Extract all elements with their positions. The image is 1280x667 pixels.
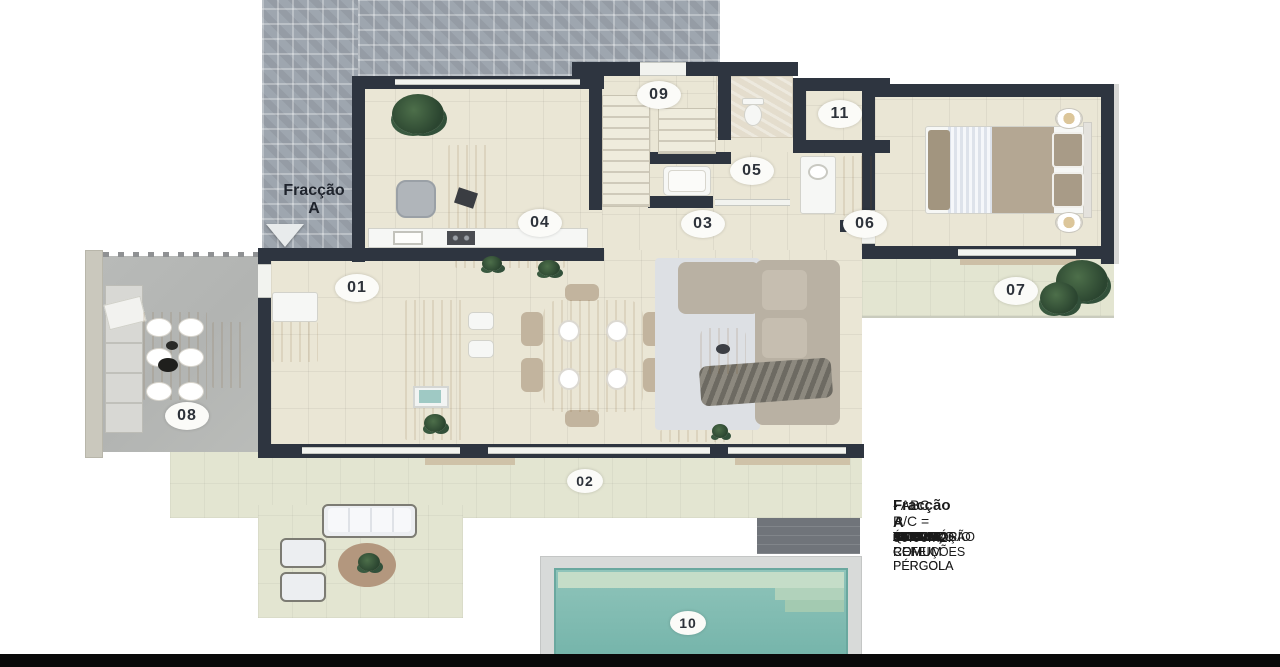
bedside-lamp-top: [1055, 108, 1083, 129]
sofa-chaise: [678, 262, 760, 314]
bedside-lamp-bottom: [1055, 212, 1083, 233]
bed-runner: [928, 130, 950, 210]
sofa-cushion-2: [762, 318, 807, 358]
outer-trim: [1114, 84, 1119, 264]
plate-1: [558, 320, 580, 342]
window: [488, 447, 710, 454]
bathtub-inner: [668, 170, 706, 192]
staircase-long-flight: [602, 95, 650, 207]
room-label-10: 10: [670, 611, 706, 635]
outdoor-chair-5: [146, 382, 172, 401]
threshold: [425, 458, 515, 465]
side-cabinet: [272, 292, 318, 322]
pool-step-2: [775, 588, 844, 600]
entrance-arrow-icon: [266, 224, 304, 247]
entry-door: [640, 62, 688, 76]
island-plant-top: [538, 260, 560, 276]
table-bowl-2: [158, 358, 178, 372]
outdoor-armchair-1: [280, 538, 326, 568]
room-label-06: 06: [843, 210, 887, 238]
room-label-09: 09: [637, 81, 681, 109]
coffee-table-bowl: [716, 344, 730, 354]
outdoor-sofa-cushions: [328, 508, 411, 532]
threshold: [735, 458, 850, 465]
dining-chair-left-2: [521, 358, 543, 392]
bed-throw: [948, 127, 992, 213]
area-08-pergola-ticks: [103, 252, 266, 257]
shelf-plant: [482, 256, 502, 271]
wall: [1101, 84, 1114, 264]
plate-4: [606, 368, 628, 390]
dining-table: [543, 300, 643, 412]
plate-3: [558, 368, 580, 390]
pool-step-shelf: [558, 572, 844, 588]
wall: [352, 76, 365, 262]
staircase-landing: [658, 108, 716, 154]
bed-blanket: [992, 127, 1054, 213]
office-plant: [392, 94, 444, 134]
area-08-left-wall: [85, 250, 103, 458]
room-label-02: 02: [567, 469, 603, 493]
room-label-01: 01: [335, 274, 379, 302]
window: [728, 447, 846, 454]
bedroom-slider: [958, 249, 1076, 256]
room-label-04: 04: [518, 209, 562, 237]
toilet: [744, 104, 762, 126]
floor-plan-page: Fracção A: [0, 0, 1280, 667]
pool-dark-paver: [757, 518, 860, 554]
wall: [589, 76, 602, 210]
room-label-05: 05: [730, 157, 774, 185]
cooktop: [447, 231, 475, 245]
room-label-08: 08: [165, 402, 209, 430]
counter-sink: [393, 231, 423, 245]
outdoor-chair-4: [178, 348, 204, 367]
living-side-door: [258, 264, 271, 298]
dining-chair-top: [565, 284, 599, 301]
bath-door: [715, 199, 790, 206]
sofa-cushion-1: [762, 270, 807, 310]
dining-chair-left-1: [521, 312, 543, 346]
pool-step-3: [785, 600, 844, 612]
rug-plant: [358, 553, 380, 571]
outdoor-side-table: [212, 322, 246, 388]
room-label-07: 07: [994, 277, 1038, 305]
outdoor-chair-6: [178, 382, 204, 401]
vanity-basin: [808, 164, 828, 180]
outdoor-armchair-2: [280, 572, 326, 602]
bed-headboard: [1083, 122, 1092, 218]
table-bowl-1: [166, 341, 178, 350]
wall: [572, 62, 642, 76]
island-sink-basin: [419, 390, 441, 403]
wall: [686, 62, 798, 76]
window: [302, 447, 460, 454]
pillow-top: [1052, 132, 1084, 168]
entrance-label: Fracção A: [266, 182, 362, 218]
wall: [718, 76, 731, 140]
outdoor-chair-2: [178, 318, 204, 337]
outdoor-chair-1: [146, 318, 172, 337]
wall: [868, 84, 1114, 97]
bar-stool-1: [468, 312, 494, 330]
plate-2: [606, 320, 628, 342]
bottom-black-bar: [0, 654, 1280, 667]
room-label-11: 11: [818, 100, 862, 128]
island-plant: [424, 414, 446, 432]
entrance-label-line2: A: [266, 200, 362, 218]
side-cabinet-lower: [272, 322, 318, 362]
office-chair: [396, 180, 436, 218]
wall: [648, 196, 713, 208]
terrace-plant-2: [1040, 282, 1078, 314]
toilet-tank: [742, 98, 764, 105]
wall: [793, 140, 890, 153]
window: [395, 79, 580, 85]
room-label-03: 03: [681, 210, 725, 238]
dining-chair-bottom: [565, 410, 599, 427]
bar-stool-2: [468, 340, 494, 358]
living-plant: [712, 424, 728, 438]
pillow-bottom: [1052, 172, 1084, 208]
entrance-label-line1: Fracção: [266, 182, 362, 200]
wardrobe: [843, 156, 873, 216]
legend-row-unit: m2: [893, 530, 923, 545]
